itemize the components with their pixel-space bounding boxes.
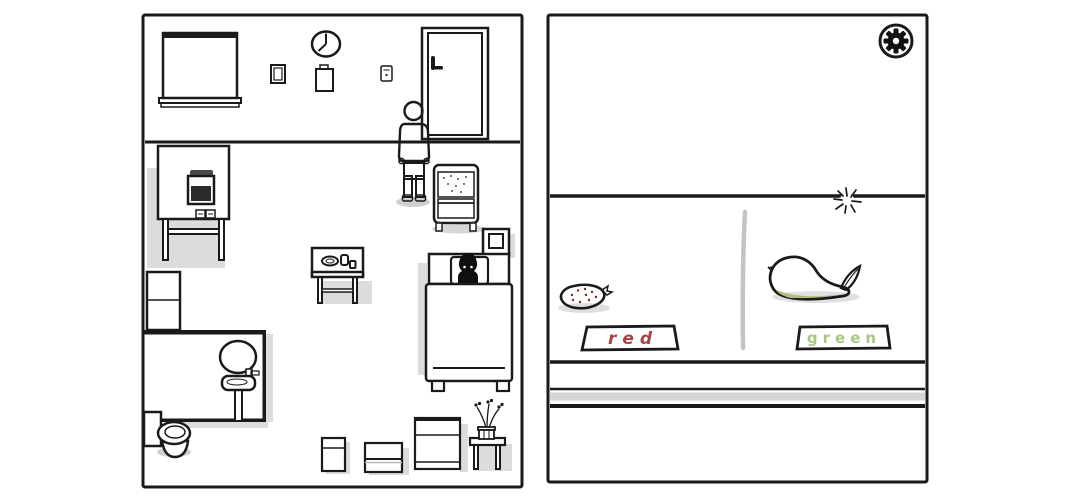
- bath-wall-right: [263, 333, 267, 421]
- game-screen: red green: [0, 0, 1080, 498]
- label-card-green[interactable]: green: [797, 326, 890, 349]
- small-box[interactable]: [322, 438, 350, 474]
- blanket[interactable]: [426, 284, 512, 381]
- roller-blind-window[interactable]: [159, 33, 241, 107]
- wide-box[interactable]: [365, 443, 409, 475]
- table-divider: [743, 212, 745, 348]
- scene-canvas: red green: [0, 0, 1080, 498]
- sleeping-figure-head[interactable]: [458, 253, 478, 284]
- left-panel-room: [143, 15, 522, 487]
- dresser[interactable]: [414, 418, 468, 472]
- label-text-green: green: [807, 329, 881, 347]
- right-panel-border: [548, 15, 927, 482]
- cup-icon[interactable]: [341, 255, 348, 265]
- light-switch[interactable]: [381, 66, 392, 81]
- clipboard[interactable]: [316, 65, 333, 91]
- dresser-shadow: [460, 424, 468, 472]
- tall-cabinet[interactable]: [147, 272, 180, 330]
- bath-wall-top: [143, 330, 266, 335]
- mug-icon[interactable]: [350, 261, 356, 268]
- medical-machine-on-table[interactable]: [147, 146, 229, 268]
- bed-with-sleeping-figure[interactable]: [418, 253, 512, 391]
- plant-table-shadow: [474, 444, 512, 471]
- side-table-with-meal[interactable]: [312, 248, 372, 304]
- picture-frame[interactable]: [271, 65, 285, 83]
- apron-gray-band: [550, 393, 925, 401]
- door[interactable]: [422, 28, 488, 139]
- gear-icon: [884, 29, 909, 54]
- label-card-red[interactable]: red: [582, 326, 678, 350]
- wall-clock[interactable]: [312, 32, 340, 57]
- label-text-red: red: [608, 329, 658, 349]
- right-panel-table: red green: [548, 15, 927, 482]
- bathroom-mirror[interactable]: [220, 341, 256, 373]
- plate-icon[interactable]: [322, 257, 338, 266]
- wall-shadow: [266, 334, 273, 422]
- settings-button[interactable]: [880, 25, 912, 57]
